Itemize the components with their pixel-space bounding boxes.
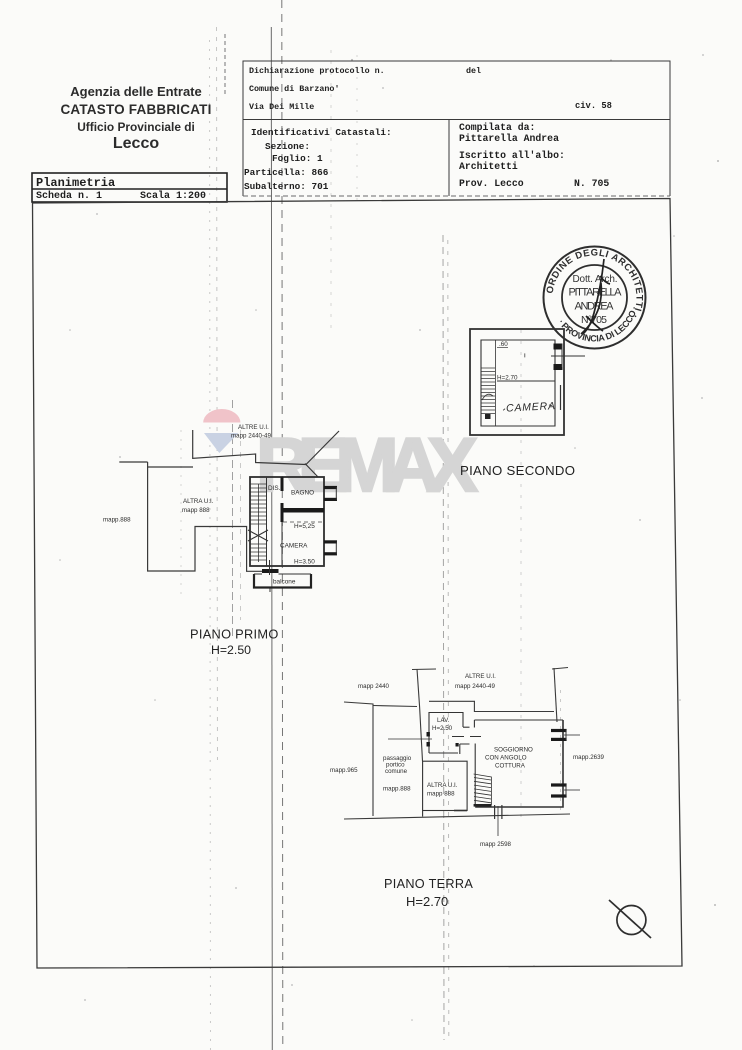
svg-text:.60: .60 <box>499 341 508 348</box>
svg-text:BAGNO: BAGNO <box>291 490 314 497</box>
svg-text:ALTRA U.I.: ALTRA U.I. <box>427 782 458 789</box>
svg-text:PITTARELLA: PITTARELLA <box>569 287 623 299</box>
svg-text:CAMERA: CAMERA <box>506 400 556 415</box>
svg-text:H=2.50: H=2.50 <box>211 643 251 657</box>
svg-text:balcone: balcone <box>273 579 296 586</box>
svg-text:H=5,25: H=5,25 <box>294 523 315 530</box>
svg-text:PIANO SECONDO: PIANO SECONDO <box>460 463 575 478</box>
svg-text:PIANO TERRA: PIANO TERRA <box>384 877 473 891</box>
svg-text:ALTRE U.I.: ALTRE U.I. <box>238 424 269 431</box>
svg-text:H=2.70: H=2.70 <box>497 375 518 382</box>
svg-text:mapp.2639: mapp.2639 <box>573 754 605 761</box>
svg-text:H=3.50: H=3.50 <box>294 559 315 566</box>
svg-text:mapp 2440: mapp 2440 <box>358 683 390 690</box>
svg-text:mapp 888: mapp 888 <box>182 507 210 514</box>
svg-text:ALTRA U.I.: ALTRA U.I. <box>183 498 214 505</box>
svg-text:CAMERA: CAMERA <box>280 543 308 550</box>
svg-text:ALTRE U.I.: ALTRE U.I. <box>465 673 496 680</box>
svg-text:H=2.50: H=2.50 <box>432 725 453 732</box>
svg-text:COTTURA: COTTURA <box>495 763 526 770</box>
svg-text:comune: comune <box>385 768 408 775</box>
svg-text:DIS.: DIS. <box>268 485 281 492</box>
svg-text:PIANO PRIMO: PIANO PRIMO <box>190 627 279 642</box>
svg-text:mapp 2440-49: mapp 2440-49 <box>231 433 271 440</box>
svg-text:mapp 888: mapp 888 <box>427 791 455 798</box>
svg-text:mapp.965: mapp.965 <box>330 767 358 774</box>
svg-text:LAV.: LAV. <box>437 717 450 724</box>
svg-text:mapp 2440-49: mapp 2440-49 <box>455 683 495 690</box>
svg-text:mapp 2598: mapp 2598 <box>480 841 512 848</box>
svg-text:REMAX: REMAX <box>256 423 478 508</box>
svg-text:CON ANGOLO: CON ANGOLO <box>485 755 527 762</box>
svg-text:Dott. Arch.: Dott. Arch. <box>573 274 618 285</box>
svg-text:H=2.70: H=2.70 <box>406 894 448 909</box>
svg-text:SOGGIORNO: SOGGIORNO <box>494 747 533 754</box>
svg-text:mapp.888: mapp.888 <box>103 517 131 524</box>
svg-text:mapp.888: mapp.888 <box>383 786 411 793</box>
